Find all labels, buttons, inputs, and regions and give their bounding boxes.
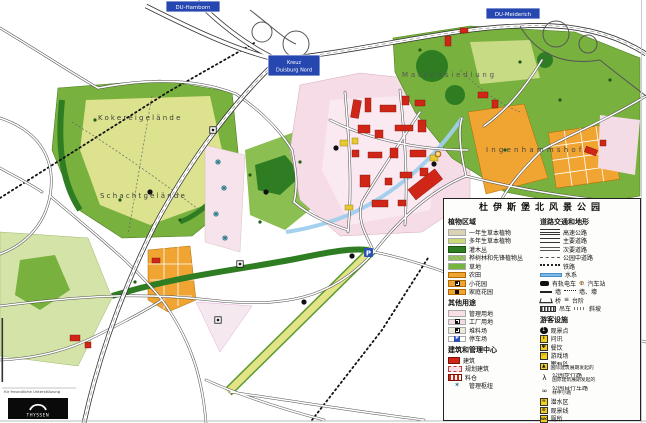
credit-note: für freundliche Unterstützung	[4, 389, 61, 394]
scenic-line-icon: ⊙	[540, 407, 548, 415]
legend-item-birch-pioneer: 桦树林和先锋植物丛	[448, 254, 536, 263]
parking-symbol: P	[364, 248, 373, 258]
legend-item-dining: Ψ餐饮	[540, 343, 636, 352]
house-icon	[455, 290, 460, 295]
factory-land-swatch	[448, 319, 466, 326]
stockyard-swatch	[448, 327, 466, 334]
label-kokereigelaende: Kokereigelände	[98, 114, 183, 122]
legend-item-climbing: ▲攀岩区国际建筑展期发起的	[540, 360, 636, 373]
flower-icon: ✶	[454, 382, 460, 389]
secondary-road-line-icon	[540, 247, 560, 251]
playground-icon: ⚐	[540, 352, 548, 360]
slope-icon	[574, 307, 586, 310]
legend-label: 家庭花园	[469, 287, 493, 296]
legend-label: 厕所	[551, 414, 563, 423]
management-hub-swatch: ✶	[448, 383, 466, 390]
legend-item-bridge-stairs: 桥≡台阶	[540, 296, 636, 305]
water-line-icon	[540, 273, 562, 278]
diving-icon: ≈	[540, 398, 548, 406]
legend-header-other: 其他用途	[448, 298, 536, 308]
legend-label: 吊车	[559, 304, 571, 313]
legend-item-main-road: 主要道路	[540, 237, 636, 246]
wall-line-icon	[540, 291, 552, 293]
legend-title: 杜伊斯堡北风景公园	[448, 202, 636, 215]
management-land-swatch	[448, 310, 466, 317]
sign-du-meiderich: DU-Meiderich	[486, 8, 540, 19]
legend-item-management-hub: ✶管理枢纽	[448, 382, 536, 391]
legend-sublabel: 国际建筑展期发起的	[552, 379, 595, 384]
legend-item-bike-path: ∞公园自行车路林中小路	[540, 385, 636, 398]
climbing-icon: ▲	[540, 363, 548, 371]
legend-left-column: 植物区域 一年生草本植物 多年生草本植物 灌木丛 桦树林和先锋植物丛 草地 农田…	[448, 215, 536, 423]
info-icon: i	[540, 335, 548, 343]
legend-item-wall-moat: 墙墙、壕	[540, 288, 636, 297]
legend-item-playground: ⚐游戏场	[540, 352, 636, 361]
legend-sublabel: 国际建筑展期发起的	[551, 367, 594, 372]
legend-item-scenic-line: ⊙观景线	[540, 406, 636, 415]
building-swatch	[448, 357, 460, 364]
motorway-line-icon	[540, 229, 560, 235]
legend-label: 游戏场	[551, 351, 569, 360]
legend-item-shrub: 灌木丛	[448, 245, 536, 254]
park-road-line-icon	[540, 257, 560, 259]
pedestrian-icon: λ	[540, 375, 549, 382]
bus-stop-icon: ⊕	[579, 280, 584, 287]
birch-swatch	[448, 255, 466, 262]
legend-item-grass: 草地	[448, 262, 536, 271]
legend-header-buildings: 建筑和管理中心	[448, 345, 536, 355]
sign-kreuz-line1: Kreuz	[287, 60, 301, 66]
legend-item-silo: 料仓	[448, 373, 536, 382]
svg-text:P: P	[366, 250, 371, 258]
legend-label: 斜坡	[589, 304, 601, 313]
legend-item-factory-land: 工厂用地	[448, 318, 536, 327]
legend-item-walking-path: λ公园步行路国际建筑展期发起的	[540, 373, 636, 386]
legend-header-roads: 道路交通和地形	[540, 217, 636, 227]
left-edge-mark	[2, 318, 4, 382]
legend-header-facilities: 游客设施	[540, 315, 636, 325]
legend-item-water: 水系	[540, 271, 636, 280]
sign-du-meiderich-label: DU-Meiderich	[495, 12, 531, 18]
legend-item-farmland: 农田	[448, 271, 536, 280]
legend-right-column: 道路交通和地形 高速公路 主要道路 次要道路 公园中道路 铁路 水系 有轨电车⊕…	[540, 215, 636, 423]
sign-kreuz-duisburg-nord: Kreuz Duisburg Nord	[268, 55, 320, 76]
factory-icon	[455, 319, 460, 324]
grass-swatch	[448, 263, 466, 270]
tram-icon	[540, 281, 549, 286]
crane-icon	[540, 306, 556, 312]
bicycle-icon: ∞	[540, 388, 549, 395]
perennial-herb-swatch	[448, 238, 466, 245]
small-garden-swatch	[448, 280, 466, 287]
farmland-swatch	[448, 272, 466, 279]
legend-item-motorway: 高速公路	[540, 228, 636, 237]
legend-item-family-garden: 家庭花园	[448, 288, 536, 297]
stockyard-icon	[455, 328, 460, 333]
legend-item-railway: 铁路	[540, 262, 636, 271]
legend-item-toilet: WC厕所	[540, 415, 636, 423]
sign-du-hamborn-label: DU-Hamborn	[176, 5, 211, 11]
legend-item-crane-slope: 吊车斜坡	[540, 305, 636, 314]
toilet-icon: WC	[540, 415, 548, 423]
legend-item-small-garden: 小花园	[448, 279, 536, 288]
sign-kreuz-line2: Duisburg Nord	[276, 68, 312, 74]
railway-line-icon	[540, 264, 560, 268]
planned-building-swatch	[448, 366, 462, 373]
legend-sublabel: 林中小路	[552, 392, 588, 397]
parking-icon: P	[454, 336, 460, 342]
legend-label: 台阶	[572, 296, 584, 305]
label-ingenhammshof: Ingenhammshof	[486, 146, 584, 154]
label-siedlung: Matenasiedlung	[402, 71, 497, 79]
thyssen-wordmark: THYSSEN	[26, 413, 50, 418]
legend-item-park-road: 公园中道路	[540, 254, 636, 263]
legend-box: 杜伊斯堡北风景公园 植物区域 一年生草本植物 多年生草本植物 灌木丛 桦树林和先…	[443, 198, 641, 421]
label-schachtgelaende: Schachtgelände	[100, 192, 187, 200]
legend-item-management-land: 管理用地	[448, 309, 536, 318]
viewpoint-icon: 1	[540, 327, 548, 335]
legend-label: 停车场	[469, 334, 487, 343]
silo-swatch	[448, 374, 462, 381]
moat-line-icon	[564, 290, 576, 293]
hut-icon	[455, 281, 460, 286]
legend-item-annual-herb: 一年生草本植物	[448, 228, 536, 237]
legend-item-secondary-road: 次要道路	[540, 245, 636, 254]
restaurant-icon: Ψ	[540, 344, 548, 352]
legend-item-planned-building: 规划建筑	[448, 365, 536, 374]
annual-herb-swatch	[448, 229, 466, 236]
legend-item-tram-busstop: 有轨电车⊕汽车站	[540, 279, 636, 288]
shrub-swatch	[448, 246, 466, 253]
legend-item-information: i问讯	[540, 335, 636, 344]
legend-label: 管理枢纽	[469, 381, 493, 390]
parking-swatch: P	[448, 336, 466, 343]
stairs-icon: ≡	[564, 297, 569, 303]
legend-item-viewpoint: 1观景点	[540, 326, 636, 335]
park-map-page: P Kokereigelände Schachtgelände Matenasi…	[0, 0, 646, 423]
family-garden-swatch	[448, 289, 466, 296]
legend-item-perennial-herb: 多年生草本植物	[448, 237, 536, 246]
legend-item-building: 建筑	[448, 356, 536, 365]
bridge-icon	[539, 298, 553, 303]
scan-edge-right	[641, 0, 642, 423]
legend-item-stockyard: 堆料场	[448, 326, 536, 335]
main-road-line-icon	[540, 238, 560, 243]
legend-item-diving: ≈潜水区	[540, 398, 636, 407]
legend-header-plants: 植物区域	[448, 217, 536, 227]
sign-du-hamborn: DU-Hamborn	[166, 1, 220, 12]
legend-item-parking: P停车场	[448, 335, 536, 344]
